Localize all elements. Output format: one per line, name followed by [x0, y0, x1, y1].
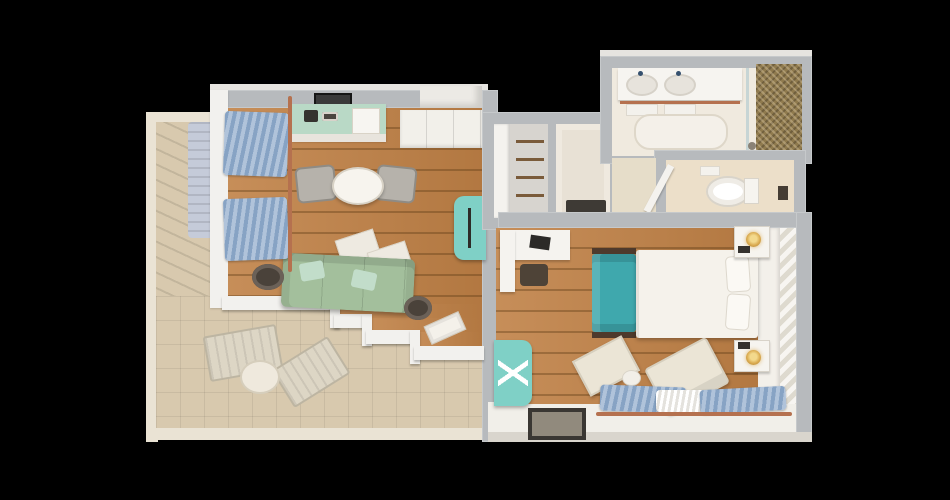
- sofa: [281, 253, 416, 314]
- curtain-rod: [596, 412, 792, 416]
- entry-step: [420, 86, 482, 108]
- bed-end-sofa: [592, 254, 636, 332]
- hanging-rail: [516, 158, 544, 161]
- accent-armchair-slat: [468, 208, 471, 248]
- side-table: [252, 264, 284, 290]
- round-pouf: [622, 370, 641, 386]
- window-curtains: [223, 111, 289, 177]
- table-lamp: [746, 232, 761, 247]
- chevron-tile-wall: [780, 228, 796, 404]
- hanging-rail: [516, 194, 544, 197]
- window-curtains: [223, 197, 289, 261]
- side-table: [404, 296, 432, 320]
- shower-drain: [748, 142, 756, 150]
- sideboard: [400, 110, 482, 148]
- faucet: [676, 71, 681, 76]
- sink: [626, 74, 658, 96]
- pillow: [725, 255, 751, 293]
- mosaic-feature-wall: [756, 64, 802, 158]
- pillow: [725, 293, 751, 331]
- bed-end-sofa-frame: [592, 332, 636, 338]
- kitchen-island-base: [292, 134, 386, 142]
- table-lamp: [746, 350, 761, 365]
- wall-bin: [778, 186, 788, 200]
- sink: [664, 74, 696, 96]
- desk-stool: [520, 264, 548, 286]
- hanging-rail: [516, 176, 544, 179]
- round-dining-table: [332, 167, 384, 205]
- bath-mat: [634, 114, 728, 150]
- step-wall: [366, 330, 416, 344]
- faucet: [638, 71, 643, 76]
- cup-tray: [322, 112, 338, 121]
- nightstand-drawer: [738, 342, 750, 349]
- step-wall: [414, 346, 484, 360]
- floor-plan: [0, 0, 950, 500]
- terrace-outer-wall-bottom: [146, 428, 490, 440]
- floor-mat-artwork: [528, 408, 586, 440]
- toilet-tank: [744, 178, 759, 204]
- nightstand-drawer: [738, 246, 750, 253]
- bedroom-wall-right: [796, 212, 812, 442]
- bench-throw: [498, 348, 528, 398]
- round-side-table: [240, 360, 280, 394]
- hanging-rail: [516, 140, 544, 143]
- shelf-column: [494, 124, 510, 218]
- wc-shelf: [700, 166, 720, 176]
- laptop: [529, 235, 551, 251]
- window-curtains: [699, 386, 786, 414]
- desk-return: [500, 230, 515, 292]
- curtain-rod: [288, 96, 292, 272]
- coffee-machine: [304, 110, 318, 122]
- serving-tray: [352, 108, 380, 134]
